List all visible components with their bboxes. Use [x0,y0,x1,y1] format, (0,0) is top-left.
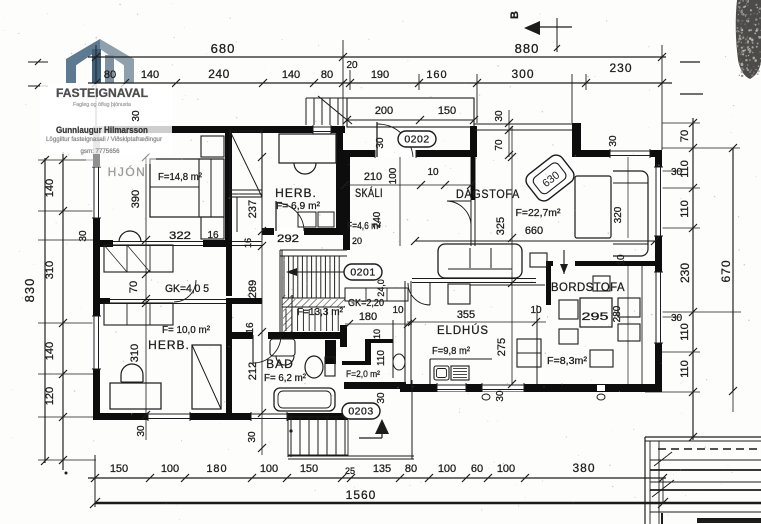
svg-text:292: 292 [277,233,299,245]
svg-text:70: 70 [679,130,691,142]
svg-text:190: 190 [371,69,389,81]
svg-text:310: 310 [129,344,141,362]
svg-text:180: 180 [206,463,227,475]
svg-text:30: 30 [671,313,683,324]
svg-text:GK=4,0 5: GK=4,0 5 [165,283,209,295]
svg-text:F=2,0 m²: F=2,0 m² [346,369,380,380]
svg-text:GK=2,20: GK=2,20 [348,298,384,309]
svg-text:30: 30 [494,110,505,122]
svg-text:FASTEIGNAVAL: FASTEIGNAVAL [56,86,148,100]
svg-text:322: 322 [169,230,191,242]
svg-text:280: 280 [612,305,623,322]
svg-text:110: 110 [679,200,691,218]
svg-text:325: 325 [495,217,507,235]
svg-text:30: 30 [247,431,258,443]
svg-text:230: 230 [609,61,632,75]
svg-text:320: 320 [613,206,624,223]
svg-text:240: 240 [208,67,230,81]
svg-text:275: 275 [496,338,508,356]
svg-text:DAGSTOFA: DAGSTOFA [456,187,520,201]
svg-text:100: 100 [260,463,278,475]
svg-text:110: 110 [376,350,387,366]
svg-text:HERB.: HERB. [148,338,190,352]
svg-text:ELDHÚS: ELDHÚS [437,322,489,337]
svg-text:20: 20 [352,236,362,246]
svg-text:140: 140 [44,342,56,360]
svg-text:140: 140 [44,179,56,197]
svg-text:150: 150 [300,463,318,475]
svg-text:30: 30 [671,167,683,178]
svg-text:355: 355 [457,309,475,321]
svg-text:F=9,8 m²: F=9,8 m² [432,345,470,357]
svg-text:F=22,7m²: F=22,7m² [516,207,561,219]
svg-text:100: 100 [497,463,515,475]
svg-text:B: B [509,11,521,19]
svg-text:140: 140 [141,69,159,81]
svg-text:230: 230 [678,263,692,283]
svg-text:30: 30 [131,110,142,122]
svg-text:240: 240 [372,211,383,228]
svg-text:212: 212 [247,362,259,380]
svg-text:10: 10 [392,305,404,316]
svg-text:30: 30 [376,392,387,404]
svg-text:Gunnlaugur Hilmarsson: Gunnlaugur Hilmarsson [56,125,148,136]
svg-text:200: 200 [375,105,393,117]
svg-text:390: 390 [130,190,142,208]
svg-text:30: 30 [78,230,89,242]
svg-text:60: 60 [471,463,483,475]
svg-text:660: 660 [525,225,543,237]
svg-text:0203: 0203 [348,406,373,418]
svg-text:30: 30 [495,390,506,402]
svg-text:10: 10 [427,167,439,178]
svg-text:25: 25 [345,466,355,476]
svg-text:100: 100 [388,167,399,184]
svg-text:30: 30 [136,425,147,437]
svg-text:0202: 0202 [404,134,429,146]
svg-text:100: 100 [161,463,179,475]
svg-text:80: 80 [321,69,333,81]
svg-text:70: 70 [494,139,505,151]
svg-text:0201: 0201 [350,267,375,279]
svg-text:210: 210 [364,171,382,183]
svg-text:F=13,3 m²: F=13,3 m² [297,306,343,318]
svg-text:310: 310 [44,261,56,279]
svg-text:380: 380 [572,461,595,475]
svg-text:20: 20 [346,60,358,71]
svg-text:gsm: 7775656: gsm: 7775656 [81,148,120,155]
svg-text:80: 80 [104,69,116,81]
svg-text:289: 289 [247,280,259,298]
svg-text:295: 295 [582,311,609,323]
svg-text:Löggiltur fasteignasali / Viðs: Löggiltur fasteignasali / Viðskiptafræði… [46,135,163,143]
svg-text:830: 830 [22,278,37,303]
svg-text:BORDSTOFA: BORDSTOFA [551,280,625,294]
svg-text:10: 10 [530,305,542,316]
svg-text:110: 110 [679,323,691,341]
svg-text:110: 110 [679,360,691,378]
svg-text:HERB.: HERB. [275,186,317,200]
svg-text:180: 180 [359,311,377,323]
svg-text:F=14,8 m²: F=14,8 m² [158,171,202,183]
svg-text:80: 80 [405,463,417,475]
svg-text:237: 237 [247,200,259,218]
svg-text:10: 10 [372,329,382,339]
svg-text:680: 680 [211,41,236,56]
svg-text:30: 30 [375,137,386,149]
svg-text:1560: 1560 [346,488,377,502]
svg-text:880: 880 [515,41,540,56]
svg-text:670: 670 [719,259,733,282]
svg-text:150: 150 [438,105,456,117]
svg-text:Fagleg og öflug þjónusta: Fagleg og öflug þjónusta [73,102,131,108]
svg-text:70: 70 [128,281,140,293]
svg-text:30: 30 [608,135,619,147]
svg-text:160: 160 [426,69,447,81]
svg-text:300: 300 [511,67,534,81]
svg-text:F= 6,2 m²: F= 6,2 m² [264,373,307,384]
svg-text:140: 140 [282,69,300,81]
svg-text:HJÓN: HJÓN [108,164,147,179]
svg-text:100: 100 [438,463,456,475]
svg-text:SKÁLI: SKÁLI [355,185,383,200]
svg-text:F= 10,0 m²: F= 10,0 m² [162,324,210,336]
svg-text:F= 6,9 m²: F= 6,9 m² [276,200,320,212]
svg-text:F=8,3m²: F=8,3m² [547,355,588,367]
svg-text:16: 16 [245,322,256,334]
svg-text:135: 135 [373,463,391,475]
svg-text:150: 150 [110,463,128,475]
svg-text:16: 16 [243,238,253,248]
